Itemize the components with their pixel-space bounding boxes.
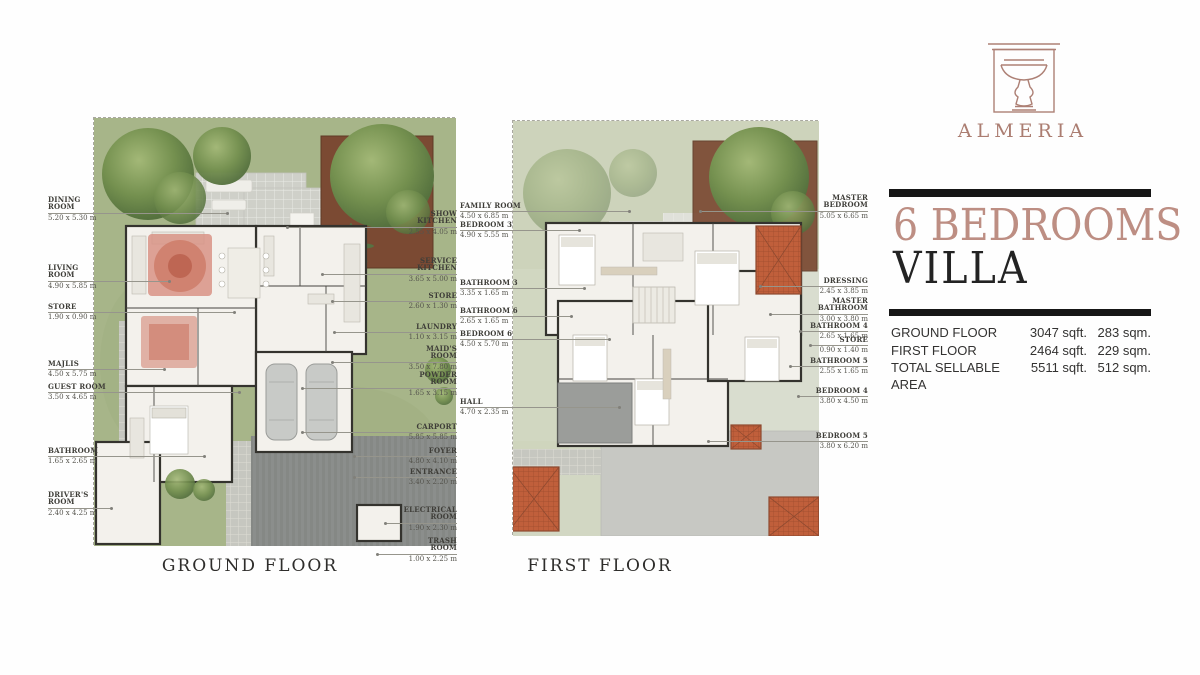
leader-line xyxy=(332,301,457,302)
label-maids-room: MAID'S ROOM3.50 x 7.80 m xyxy=(332,345,457,371)
leader-line xyxy=(460,211,630,212)
label-hall: HALL4.70 x 2.35 m xyxy=(460,398,620,417)
leader-line xyxy=(322,274,457,275)
area-sqft: 3047 sqft. xyxy=(1009,325,1087,342)
label-dining-room: DINING ROOM5.20 x 5.30 m xyxy=(48,196,228,222)
label-living-room: LIVING ROOM4.90 x 5.85 m xyxy=(48,264,170,290)
leader-line xyxy=(708,441,868,442)
area-label: GROUND FLOOR xyxy=(891,325,1009,342)
area-label: FIRST FLOOR xyxy=(891,343,1009,360)
leader-line xyxy=(334,332,457,333)
fountain-icon xyxy=(982,40,1066,116)
label-family-room: FAMILY ROOM4.50 x 6.85 m xyxy=(460,202,630,221)
leader-line xyxy=(302,388,457,389)
leader-line xyxy=(460,288,585,289)
leader-line xyxy=(810,345,868,346)
label-trash-room: TRASH ROOM1.00 x 2.25 m xyxy=(377,537,457,563)
area-sqm: 512 sqm. xyxy=(1087,360,1151,393)
label-store-gf: STORE1.90 x 0.90 m xyxy=(48,303,235,322)
leader-line xyxy=(48,369,165,370)
leader-line xyxy=(770,314,868,315)
leader-line xyxy=(460,316,572,317)
area-sqm: 229 sqm. xyxy=(1087,343,1151,360)
leader-line xyxy=(460,339,610,340)
leader-line xyxy=(460,407,620,408)
label-carport: CARPORT5.85 x 5.85 m xyxy=(302,423,457,442)
floor-plan-sheet: DINING ROOM5.20 x 5.30 m LIVING ROOM4.90… xyxy=(0,0,1200,675)
leader-line xyxy=(287,227,457,228)
label-master-bedroom: MASTER BEDROOM5.05 x 6.65 m xyxy=(700,194,868,220)
label-powder-room: POWDER ROOM1.65 x 3.15 m xyxy=(302,371,457,397)
label-foyer: FOYER4.80 x 4.10 m xyxy=(354,447,457,466)
floor-title-ground: GROUND FLOOR xyxy=(130,558,370,575)
area-table: GROUND FLOOR 3047 sqft. 283 sqm. FIRST F… xyxy=(891,325,1151,393)
area-sqft: 2464 sqft. xyxy=(1009,343,1087,360)
leader-line xyxy=(48,312,235,313)
leader-line xyxy=(377,554,457,555)
leader-line xyxy=(48,281,170,282)
label-service-kitchen: SERVICE KITCHEN3.65 x 5.00 m xyxy=(322,257,457,283)
leader-line xyxy=(798,396,868,397)
first-floor-site xyxy=(512,120,818,535)
leader-line xyxy=(700,211,868,212)
divider-bar-bottom xyxy=(889,309,1151,316)
label-bedroom-6: BEDROOM 64.50 x 5.70 m xyxy=(460,330,610,349)
label-guest-room: GUEST ROOM3.50 x 4.65 m xyxy=(48,383,240,402)
label-bathroom-6: BATHROOM 62.65 x 1.65 m xyxy=(460,307,572,326)
label-bedroom-4: BEDROOM 43.80 x 4.50 m xyxy=(798,387,868,406)
unit-type-subtitle: VILLA xyxy=(893,246,1029,290)
label-show-kitchen: SHOW KITCHEN2.55 x 4.05 m xyxy=(287,210,457,236)
unit-type-title: 6 BEDROOMS xyxy=(893,203,1182,247)
leader-line xyxy=(48,213,228,214)
label-bathroom-gf: BATHROOM1.65 x 2.65 m xyxy=(48,447,205,466)
label-dressing: DRESSING2.45 x 3.85 m xyxy=(760,277,868,296)
leader-line xyxy=(790,366,868,367)
leader-line xyxy=(332,362,457,363)
leader-line xyxy=(48,392,240,393)
leader-line xyxy=(760,286,868,287)
floor-title-first: FIRST FLOOR xyxy=(490,558,710,575)
label-electrical-room: ELECTRICAL ROOM1.90 x 2.30 m xyxy=(385,506,457,532)
leader-line xyxy=(354,477,457,478)
label-entrance: ENTRANCE3.40 x 2.20 m xyxy=(354,468,457,487)
leader-line xyxy=(354,456,457,457)
leader-line xyxy=(800,331,868,332)
first-floor-drawing xyxy=(513,121,819,536)
leader-line xyxy=(385,523,457,524)
divider-bar-top xyxy=(889,189,1151,197)
brand-name: ALMERIA xyxy=(950,122,1096,141)
label-bedroom-5: BEDROOM 53.80 x 6.20 m xyxy=(708,432,868,451)
label-bedroom-3: BEDROOM 34.90 x 5.55 m xyxy=(460,221,580,240)
label-master-bathroom: MASTER BATHROOM3.00 x 3.80 m xyxy=(770,297,868,323)
leader-line xyxy=(302,432,457,433)
area-sqm: 283 sqm. xyxy=(1087,325,1151,342)
label-bathroom-3: BATHROOM 33.35 x 1.65 m xyxy=(460,279,585,298)
label-drivers-room: DRIVER'S ROOM2.40 x 4.25 m xyxy=(48,491,112,517)
label-laundry: LAUNDRY1.10 x 3.15 m xyxy=(334,323,457,342)
leader-line xyxy=(48,456,205,457)
area-label: TOTAL SELLABLE AREA xyxy=(891,360,1009,393)
area-sqft: 5511 sqft. xyxy=(1009,360,1087,393)
label-bathroom-5: BATHROOM 52.55 x 1.65 m xyxy=(790,357,868,376)
label-store-gf-right: STORE2.60 x 1.30 m xyxy=(332,292,457,311)
label-majlis: MAJLIS4.50 x 5.75 m xyxy=(48,360,165,379)
leader-line xyxy=(48,508,112,509)
leader-line xyxy=(460,230,580,231)
label-store-ff: STORE0.90 x 1.40 m xyxy=(810,336,868,355)
